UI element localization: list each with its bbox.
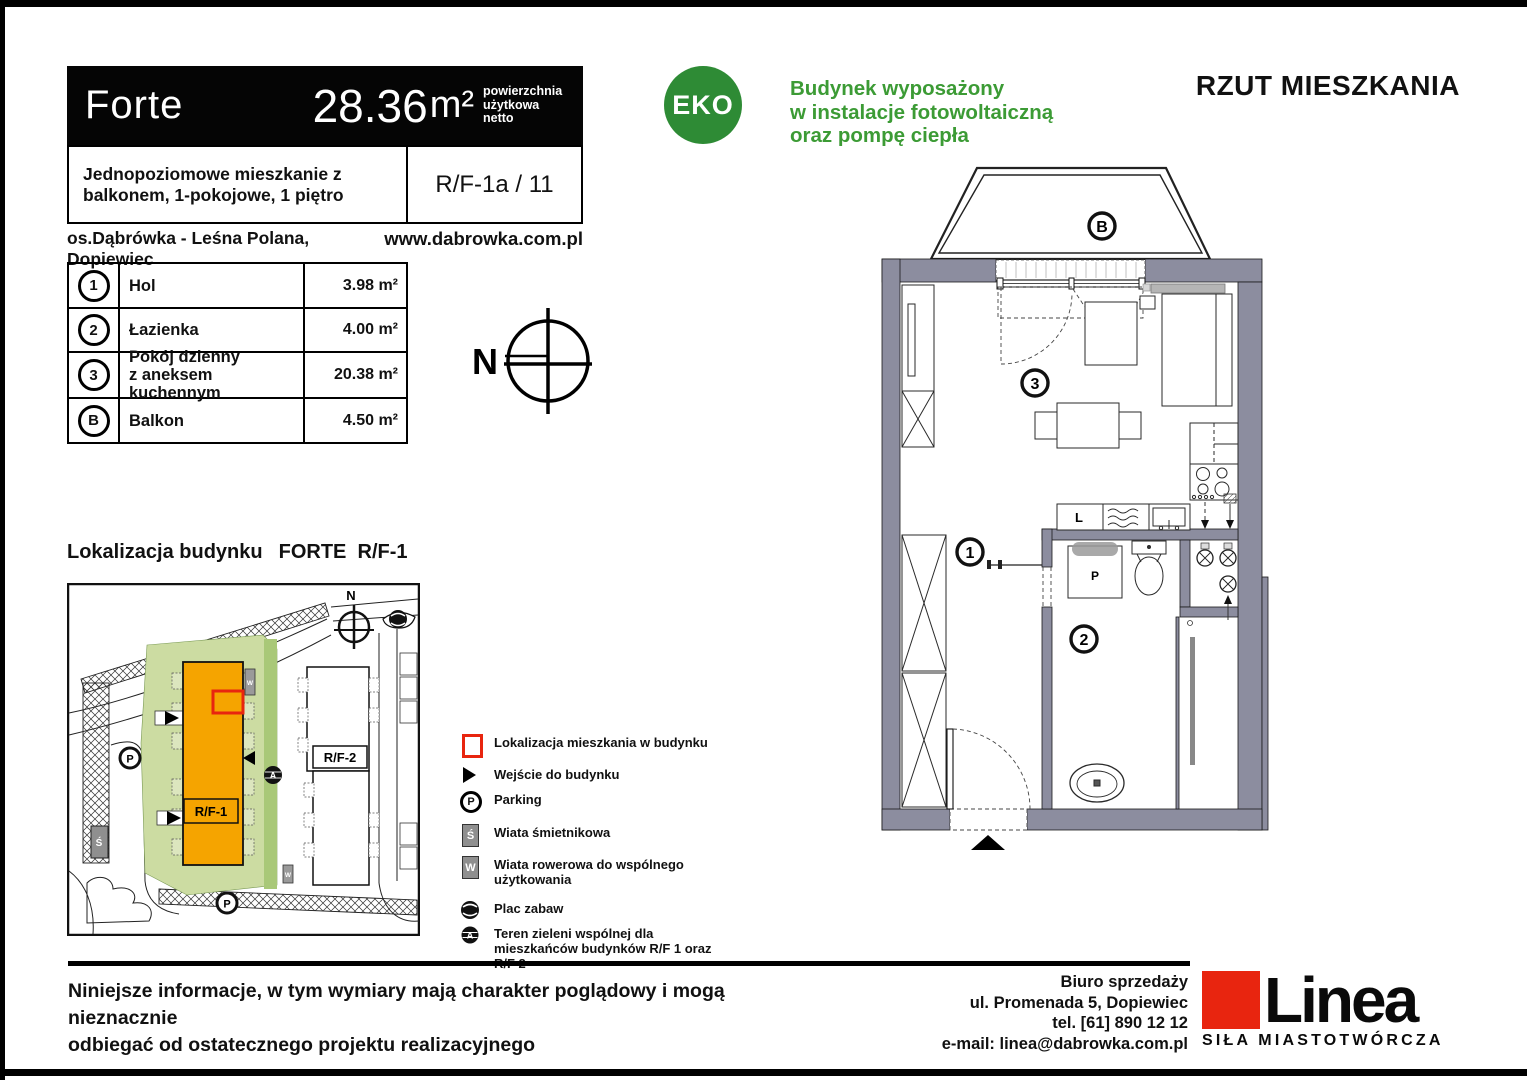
room-number-icon: 2	[69, 309, 120, 351]
parking-icon: P	[460, 791, 482, 813]
page-border-bottom	[0, 1069, 1527, 1076]
area-caption: powierzchnia użytkowa netto	[483, 85, 575, 126]
room-area: 20.38 m²	[303, 353, 406, 397]
building-entrance-icon	[463, 767, 476, 783]
washer-label: P	[1091, 569, 1099, 583]
legend-label: Wiata śmietnikowa	[494, 824, 728, 840]
installation-shaft	[1188, 494, 1237, 626]
room-number: 2	[78, 314, 110, 346]
office-email: e-mail: linea@dabrowka.com.pl	[900, 1034, 1188, 1055]
compass-north-label: N	[472, 341, 498, 382]
site-map-title-building: FORTE R/F-1	[279, 541, 408, 563]
linea-brand-name: Linea	[1264, 971, 1416, 1029]
entrance-marker-icon	[971, 835, 1005, 850]
map-legend: Lokalizacja mieszkania w budynku Wejście…	[460, 734, 728, 971]
room-area: 4.50 m²	[303, 399, 406, 442]
map-parking-letter: P	[223, 899, 230, 911]
map-building-rf2-label: R/F-2	[324, 750, 357, 765]
bathroom-label: 2	[1080, 632, 1089, 649]
area-value: 28.36	[313, 79, 428, 133]
green-area-icon: A	[460, 925, 480, 945]
table-row: B Balkon 4.50 m²	[69, 399, 406, 442]
floor-plan: L P	[860, 152, 1292, 858]
unit-description-row: Jednopoziomowe mieszkanie z balkonem, 1-…	[67, 145, 583, 224]
room-table: 1 Hol 3.98 m² 2 Łazienka 4.00 m² 3 Pokój…	[67, 262, 408, 444]
unit-description: Jednopoziomowe mieszkanie z balkonem, 1-…	[69, 147, 408, 222]
project-name: Forte	[85, 83, 183, 128]
map-building-rf1-label: R/F-1	[195, 804, 228, 819]
hol-label: 1	[966, 545, 975, 562]
washbasin	[1070, 764, 1124, 802]
room-number-icon: 3	[69, 353, 120, 397]
page-border-left	[0, 0, 5, 1080]
compass-icon: N	[458, 300, 610, 422]
playground-icon	[460, 900, 480, 920]
trash-letter: Ś	[467, 830, 474, 842]
legend-label: Plac zabaw	[494, 900, 728, 916]
hol-wardrobes	[902, 535, 946, 807]
room-name: Hol	[120, 264, 303, 307]
header-box: Forte 28.36 m² powierzchnia użytkowa net…	[67, 66, 583, 145]
living-room-label: 3	[1031, 376, 1040, 393]
green-area-letter: A	[467, 931, 474, 941]
room-number: 1	[78, 270, 110, 302]
room-number: B	[78, 405, 110, 437]
legend-item: Wejście do budynku	[460, 766, 728, 784]
desk	[1085, 302, 1137, 365]
table-row: 3 Pokój dzienny z aneksem kuchennym 20.3…	[69, 353, 406, 399]
area-unit: m²	[430, 84, 474, 127]
room-number-icon: 1	[69, 264, 120, 307]
bike-shelter-icon: W	[462, 856, 479, 879]
map-trash-letter: Ś	[96, 836, 103, 849]
website: www.dabrowka.com.pl	[384, 228, 583, 270]
parking-letter: P	[467, 796, 474, 808]
map-green-area-letter: A	[270, 771, 277, 781]
site-map: R/F-1 R/F-2 Ś W W P P A	[67, 583, 420, 936]
linea-red-square-icon	[1202, 971, 1260, 1029]
sales-office-info: Biuro sprzedaży ul. Promenada 5, Dopiewi…	[900, 972, 1188, 1054]
site-map-title: Lokalizacja budynkuFORTE R/F-1	[67, 541, 408, 564]
wardrobe-living	[902, 285, 934, 447]
bike-letter: W	[465, 862, 475, 874]
table-row: 2 Łazienka 4.00 m²	[69, 309, 406, 353]
legend-item: Plac zabaw	[460, 900, 728, 920]
balcony-window	[996, 260, 1145, 289]
eko-badge-icon: EKO	[664, 66, 742, 144]
trash-shelter-icon: Ś	[462, 824, 479, 847]
room-number-icon: B	[69, 399, 120, 442]
office-title: Biuro sprzedaży	[900, 972, 1188, 993]
balcony-label: B	[1096, 219, 1108, 236]
office-address: ul. Promenada 5, Dopiewiec	[900, 993, 1188, 1014]
map-north-label: N	[346, 588, 355, 603]
legend-label: Lokalizacja mieszkania w budynku	[494, 734, 728, 750]
towel-radiator	[1190, 637, 1195, 765]
room-number: 3	[78, 359, 110, 391]
legend-label: Wejście do budynku	[494, 766, 728, 782]
legend-item: W Wiata rowerowa do wspólnego użytkowani…	[460, 856, 728, 887]
legend-item: P Parking	[460, 791, 728, 813]
office-phone: tel. [61] 890 12 12	[900, 1013, 1188, 1034]
linea-logo: Linea SIŁA MIASTOTWÓRCZA	[1202, 971, 1464, 1050]
toilet	[1132, 541, 1166, 595]
room-name: Pokój dzienny z aneksem kuchennym	[120, 353, 303, 397]
linea-tagline: SIŁA MIASTOTWÓRCZA	[1202, 1032, 1464, 1050]
balcony-outline	[931, 168, 1210, 259]
area-total: 28.36 m²	[313, 79, 474, 133]
page-border-top	[0, 0, 1527, 7]
legend-item: Lokalizacja mieszkania w budynku	[460, 734, 728, 758]
room-name: Balkon	[120, 399, 303, 442]
site-map-title-prefix: Lokalizacja budynku	[67, 541, 263, 563]
footer-divider	[68, 961, 1190, 966]
bathroom-door	[987, 560, 1051, 607]
table-row: 1 Hol 3.98 m²	[69, 264, 406, 309]
map-bike-letter: W	[247, 680, 254, 687]
legend-label: Parking	[494, 791, 728, 807]
radiator	[1143, 284, 1225, 293]
disclaimer-text: Niniejsze informacje, w tym wymiary mają…	[68, 978, 818, 1059]
bed	[1140, 294, 1232, 406]
map-bike-letter: W	[285, 872, 292, 879]
legend-label: Wiata rowerowa do wspólnego użytkowania	[494, 856, 728, 887]
entrance-door	[947, 729, 1030, 830]
map-green-edge	[264, 639, 277, 889]
room-name: Łazienka	[120, 309, 303, 351]
room-area: 4.00 m²	[303, 309, 406, 351]
legend-item: Ś Wiata śmietnikowa	[460, 824, 728, 847]
kitchen-cabinet	[1190, 423, 1238, 464]
dining-table	[1035, 403, 1141, 448]
eco-description: Budynek wyposażony w instalacje fotowolt…	[790, 77, 1053, 148]
apartment-location-icon	[462, 734, 483, 758]
room-area: 3.98 m²	[303, 264, 406, 307]
unit-code: R/F-1a / 11	[408, 147, 581, 222]
fridge-label: L	[1075, 510, 1083, 525]
page-title: RZUT MIESZKANIA	[1196, 70, 1460, 102]
map-parking-letter: P	[126, 754, 133, 766]
